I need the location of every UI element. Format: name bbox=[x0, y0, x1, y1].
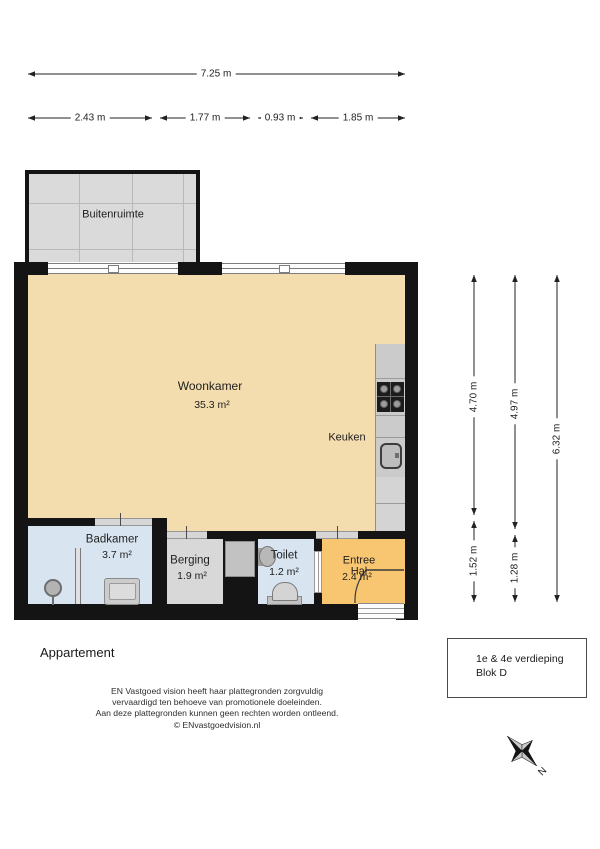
burner-icon bbox=[393, 385, 401, 393]
toilet-door bbox=[314, 551, 322, 593]
balcony-grid-line bbox=[29, 203, 196, 204]
dim-label-height-2a: 4.97 m bbox=[510, 384, 521, 425]
wall-segment bbox=[345, 262, 418, 275]
burner-icon bbox=[380, 385, 388, 393]
door-threshold bbox=[95, 518, 152, 526]
kitchen-sink-icon bbox=[380, 443, 402, 469]
stove-grid-line bbox=[377, 396, 404, 397]
dim-label-width-4: 1.85 m bbox=[339, 113, 378, 124]
shower-head-icon bbox=[44, 579, 62, 597]
disclaimer-line: EN Vastgoed vision heeft haar plattegron… bbox=[0, 686, 434, 697]
floor-info-line2: Blok D bbox=[476, 666, 586, 680]
plan-title: Appartement bbox=[40, 645, 114, 660]
burner-icon bbox=[393, 400, 401, 408]
disclaimer-line: Aan deze plattegronden kunnen geen recht… bbox=[0, 708, 434, 719]
dim-label-width-3: 0.93 m bbox=[261, 113, 300, 124]
wall-segment bbox=[314, 593, 322, 604]
dim-label-height-1b: 1.52 m bbox=[469, 541, 480, 582]
door-center-tick bbox=[337, 526, 338, 540]
room-label-berging: Berging bbox=[170, 555, 210, 567]
room-area-badkamer: 3.7 m² bbox=[102, 550, 132, 561]
door-threshold bbox=[167, 531, 207, 539]
dim-label-height-3: 6.32 m bbox=[552, 419, 563, 460]
counter-divider bbox=[375, 437, 405, 438]
floor-info-box: 1e & 4e verdieping Blok D bbox=[447, 638, 587, 698]
wall-segment bbox=[314, 539, 322, 551]
room-label-keuken: Keuken bbox=[328, 433, 365, 444]
washbasin-icon bbox=[104, 578, 140, 605]
compass-north-label: N bbox=[535, 764, 548, 777]
front-door-threshold bbox=[358, 603, 404, 619]
toilet-bowl-icon bbox=[272, 582, 298, 601]
window-handle-icon bbox=[108, 265, 119, 273]
room-label-toilet: Toilet bbox=[271, 550, 298, 562]
room-area-toilet: 1.2 m² bbox=[269, 567, 299, 578]
shower-stem bbox=[52, 596, 54, 605]
balcony-grid-line bbox=[29, 249, 196, 250]
threshold-line bbox=[358, 613, 404, 614]
room-label-badkamer: Badkamer bbox=[86, 534, 138, 546]
compass-icon: N bbox=[497, 726, 556, 785]
wall-segment bbox=[14, 262, 28, 620]
floor-info-line1: 1e & 4e verdieping bbox=[476, 652, 586, 666]
wall-segment bbox=[405, 275, 418, 620]
threshold-line bbox=[358, 608, 404, 609]
room-area-entree: 2.4 m² bbox=[342, 572, 372, 583]
door-leaf-line bbox=[318, 552, 319, 592]
wall-segment bbox=[14, 604, 358, 620]
wall-segment bbox=[178, 262, 222, 275]
stove-icon bbox=[377, 382, 404, 412]
room-area-woonkamer: 35.3 m² bbox=[194, 400, 230, 411]
room-label-buitenruimte: Buitenruimte bbox=[82, 210, 144, 221]
disclaimer-text: EN Vastgoed vision heeft haar plattegron… bbox=[0, 686, 434, 731]
radiator-icon bbox=[75, 548, 81, 604]
counter-divider bbox=[375, 415, 405, 416]
shaft-block bbox=[225, 541, 255, 577]
dim-label-height-2b: 1.28 m bbox=[510, 548, 521, 589]
dim-label-height-1a: 4.70 m bbox=[469, 377, 480, 418]
floorplan-page: N 7.25 m 2.43 m 1.77 m 0.93 m 1.85 m 4.7… bbox=[0, 0, 600, 849]
wall-segment bbox=[28, 518, 95, 526]
kitchen-counter bbox=[375, 477, 405, 533]
window bbox=[222, 263, 345, 274]
stove-grid-line bbox=[390, 382, 391, 412]
window-handle-icon bbox=[279, 265, 290, 273]
dim-label-width-2: 1.77 m bbox=[186, 113, 225, 124]
window bbox=[48, 263, 178, 274]
counter-divider bbox=[375, 503, 405, 504]
faucet-icon bbox=[395, 453, 399, 458]
counter-divider bbox=[375, 378, 405, 379]
disclaimer-line: vervaardigd ten behoeve van promotionele… bbox=[0, 697, 434, 708]
door-center-tick bbox=[186, 526, 187, 540]
dim-label-width-1: 2.43 m bbox=[71, 113, 110, 124]
room-label-woonkamer: Woonkamer bbox=[178, 380, 242, 392]
dim-label-total-width: 7.25 m bbox=[197, 69, 236, 80]
burner-icon bbox=[380, 400, 388, 408]
room-area-berging: 1.9 m² bbox=[177, 571, 207, 582]
washbasin-inner bbox=[109, 583, 136, 600]
disclaimer-line: © ENvastgoedvision.nl bbox=[0, 720, 434, 731]
door-center-tick bbox=[120, 513, 121, 527]
